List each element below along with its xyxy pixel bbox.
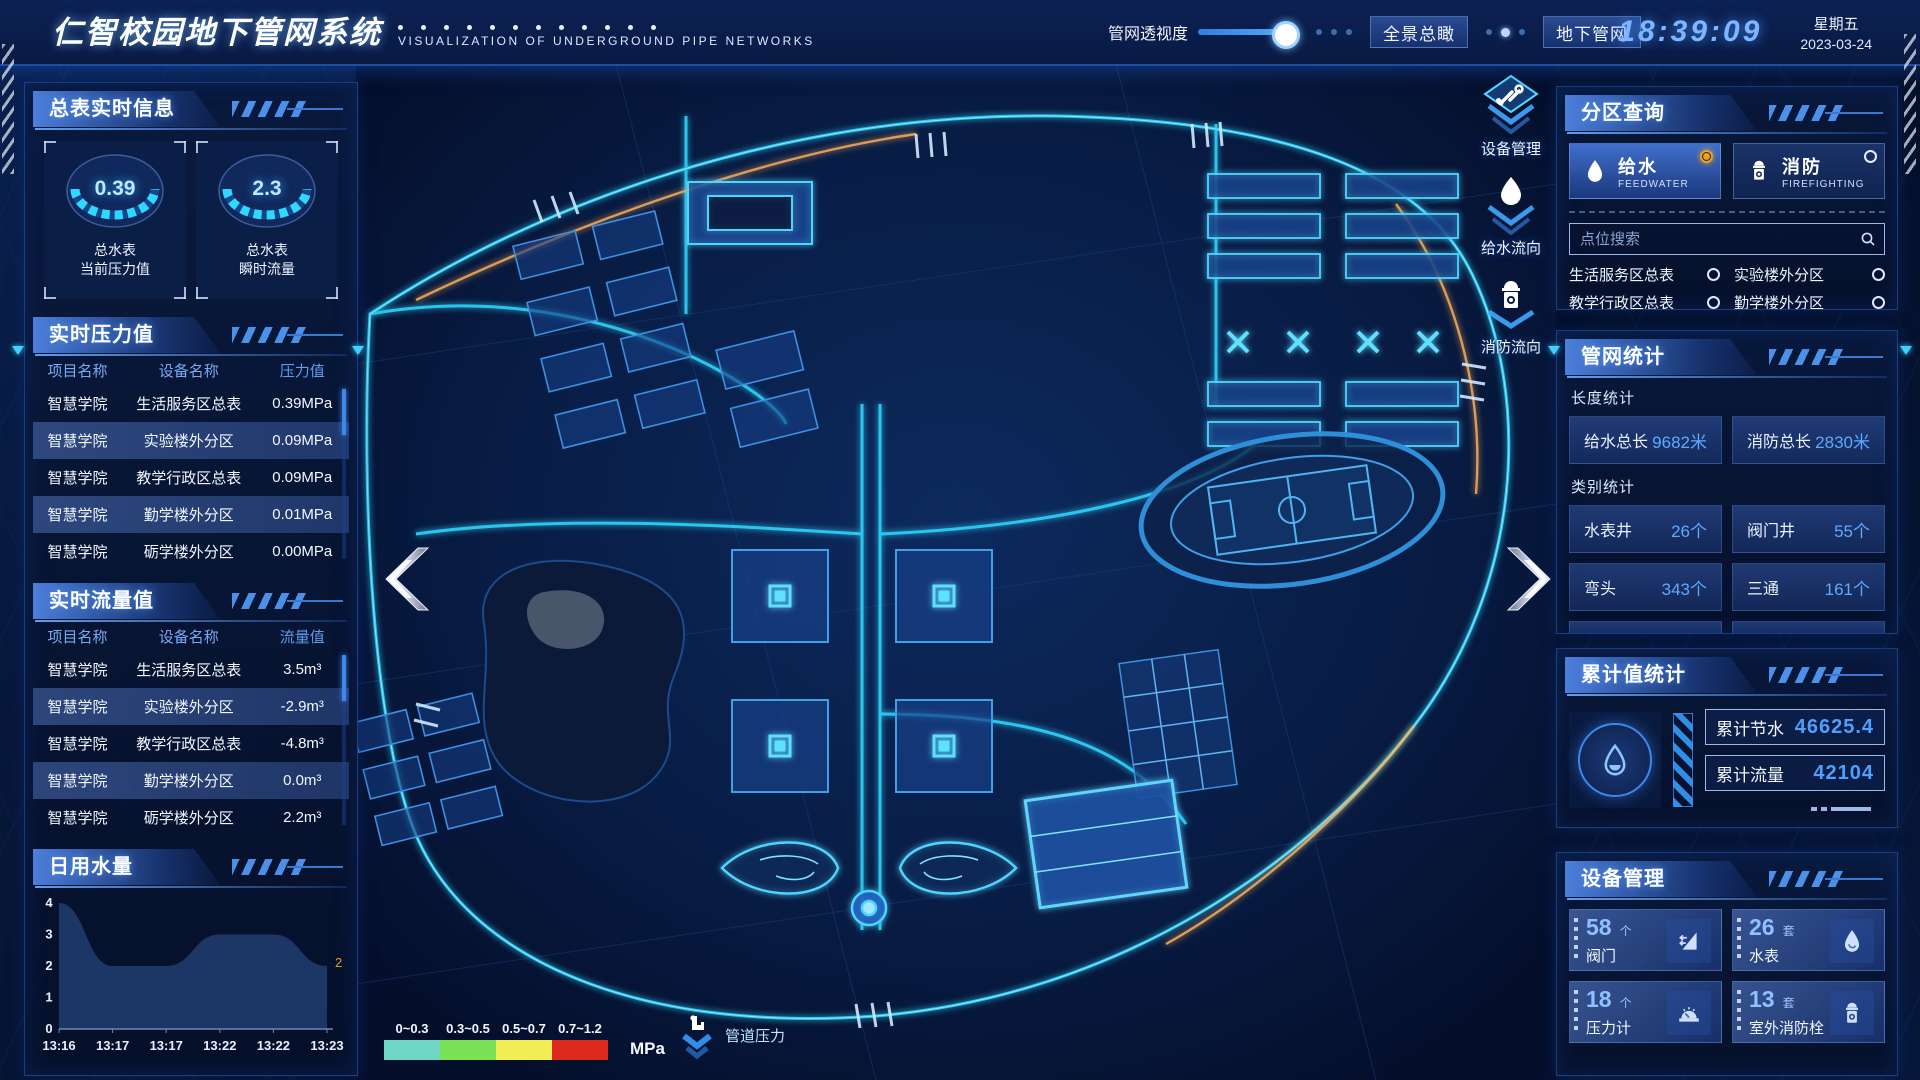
- legend-band: 0.3~0.5: [440, 1021, 496, 1060]
- panel-scroll-arrow[interactable]: [12, 346, 24, 355]
- category-stats-label: 类别统计: [1571, 476, 1883, 497]
- flow-gauge-card: 2.3 总水表 瞬时流量: [196, 141, 338, 299]
- col-header: 设备名称: [122, 360, 256, 381]
- section-devices: 设备管理: [1567, 861, 1887, 897]
- water-drop-icon: [1598, 743, 1632, 777]
- gauge-label-line2: 当前压力值: [44, 260, 186, 279]
- table-row: 智慧学院砺学楼外分区2.2m³: [33, 799, 349, 833]
- line-decor: [1825, 356, 1883, 358]
- pressure-gauge-card: 0.39 总水表 当前压力值: [44, 141, 186, 299]
- table-header-row: 项目名称 设备名称 流量值: [33, 621, 349, 651]
- valve-icon: [1676, 928, 1702, 954]
- table-row: 智慧学院生活服务区总表3.5m³: [33, 651, 349, 688]
- svg-text:13:17: 13:17: [150, 1038, 183, 1053]
- line-decor: [287, 600, 343, 602]
- tab-feedwater[interactable]: 给水 FEEDWATER: [1569, 143, 1721, 199]
- pipeline-pressure-icon: [679, 1014, 715, 1064]
- gauge-value: 0.39: [59, 177, 171, 201]
- table-row: 智慧学院砺学楼外分区0.00MPa: [33, 533, 349, 567]
- legend-unit: MPa: [630, 1039, 665, 1059]
- tab-firefighting[interactable]: 消防 FIREFIGHTING: [1733, 143, 1885, 199]
- radio-unselected[interactable]: [1707, 268, 1720, 281]
- app-subtitle: VISUALIZATION OF UNDERGROUND PIPE NETWOR…: [398, 34, 815, 48]
- table-row: 智慧学院教学行政区总表0.09MPa: [33, 459, 349, 496]
- device-card-pressure-gauge[interactable]: 18个 压力计: [1569, 981, 1722, 1043]
- dots-decor: [1811, 807, 1871, 811]
- category-stat-clipped: [1732, 621, 1885, 634]
- table-row: 智慧学院勤学楼外分区0.0m³: [33, 762, 349, 799]
- accumulated-panel: 累计值统计 累计节水46625.4 累计流量42104: [1556, 648, 1898, 828]
- table-row: 智慧学院教学行政区总表-4.8m³: [33, 725, 349, 762]
- line-decor: [287, 866, 343, 868]
- svg-text:2: 2: [335, 955, 342, 970]
- weekday: 星期五: [1814, 13, 1859, 34]
- water-drop-icon: [1582, 158, 1608, 184]
- hatch-divider: [1673, 713, 1693, 807]
- col-header: 压力值: [256, 360, 349, 381]
- section-title: 分区查询: [1567, 95, 1665, 131]
- hydrant-icon: [1502, 281, 1520, 308]
- map-tools-column: 设备管理 给水流向 消防流向: [1468, 74, 1554, 357]
- section-title: 实时压力值: [35, 317, 154, 353]
- svg-text:13:22: 13:22: [203, 1038, 236, 1053]
- gauge-label-line1: 总水表: [196, 241, 338, 260]
- section-title: 日用水量: [35, 849, 133, 885]
- separator-dots: [1486, 28, 1525, 37]
- radio-unselected[interactable]: [1707, 296, 1720, 309]
- section-zone-query: 分区查询: [1567, 95, 1887, 131]
- category-stat: 弯头343个: [1569, 563, 1722, 611]
- daily-water-chart: 0123413:1613:1713:1713:2213:2213:232: [29, 891, 349, 1064]
- section-title: 总表实时信息: [35, 91, 175, 127]
- section-daily-water: 日用水量: [35, 849, 347, 885]
- dashboard-root: 仁智校园地下管网系统 VISUALIZATION OF UNDERGROUND …: [0, 0, 1920, 1080]
- legend-band: 0~0.3: [384, 1021, 440, 1060]
- accumulated-flow: 累计流量42104: [1705, 755, 1885, 791]
- radio-selected[interactable]: [1700, 150, 1713, 163]
- overlay-label: 给水流向: [1481, 237, 1541, 258]
- svg-text:13:23: 13:23: [310, 1038, 343, 1053]
- panel-scroll-arrow[interactable]: [352, 346, 364, 355]
- hydrant-icon: [1746, 158, 1772, 184]
- section-title: 累计值统计: [1567, 657, 1686, 693]
- line-decor: [1825, 878, 1883, 880]
- left-panel: 总表实时信息 0.39 总水表 当前压力值: [24, 82, 358, 1076]
- gauge-label-line2: 瞬时流量: [196, 260, 338, 279]
- length-stat: 消防总长2830米: [1732, 416, 1885, 464]
- device-card-valve[interactable]: 58个 阀门: [1569, 909, 1722, 971]
- table-row: 智慧学院勤学楼外分区0.01MPa: [33, 496, 349, 533]
- category-stat-clipped: [1569, 621, 1722, 634]
- tab-label: 消防: [1782, 153, 1865, 179]
- firefighting-flow-overlay-button[interactable]: 消防流向: [1479, 272, 1543, 357]
- water-saving-icon-card: [1569, 712, 1661, 808]
- col-header: 项目名称: [33, 626, 122, 647]
- point-item[interactable]: 实验楼外分区: [1734, 261, 1885, 288]
- campus-map-viewport[interactable]: [356, 64, 1556, 1080]
- line-decor: [287, 334, 343, 336]
- section-pipe-stats: 管网统计: [1567, 339, 1887, 375]
- legend-band: 0.7~1.2: [552, 1021, 608, 1060]
- scrollbar[interactable]: [342, 655, 346, 825]
- accumulated-water-saved: 累计节水46625.4: [1705, 709, 1885, 745]
- tab-label: 给水: [1618, 153, 1689, 179]
- svg-text:1: 1: [45, 990, 52, 1005]
- water-drop-icon: [1501, 177, 1521, 205]
- line-decor: [287, 108, 343, 110]
- dashed-divider: [1569, 211, 1885, 213]
- category-stat: 阀门井55个: [1732, 505, 1885, 553]
- opacity-slider[interactable]: [1198, 29, 1298, 35]
- gauge-label-line1: 总水表: [44, 241, 186, 260]
- point-item[interactable]: 勤学楼外分区: [1734, 289, 1885, 310]
- table-row: 智慧学院生活服务区总表0.39MPa: [33, 385, 349, 422]
- length-stat: 给水总长9682米: [1569, 416, 1722, 464]
- search-icon[interactable]: [1860, 231, 1876, 247]
- section-title: 实时流量值: [35, 583, 154, 619]
- edge-hatch-right: [1904, 34, 1916, 174]
- section-title: 设备管理: [1567, 861, 1665, 897]
- section-meter-info: 总表实时信息: [35, 91, 347, 127]
- section-pressure: 实时压力值: [35, 317, 347, 353]
- svg-text:3: 3: [45, 927, 52, 942]
- device-card-outdoor-hydrant[interactable]: 13套 室外消防栓: [1732, 981, 1885, 1043]
- svg-text:0: 0: [45, 1021, 52, 1036]
- section-title: 管网统计: [1567, 339, 1665, 375]
- device-card-water-meter[interactable]: 26套 水表: [1732, 909, 1885, 971]
- svg-text:13:22: 13:22: [257, 1038, 290, 1053]
- point-item[interactable]: 生活服务区总表: [1569, 261, 1720, 288]
- opacity-slider-fill: [1198, 29, 1280, 35]
- device-management-overlay-button[interactable]: 设备管理: [1479, 74, 1543, 159]
- feedwater-flow-overlay-button[interactable]: 给水流向: [1479, 173, 1543, 258]
- zone-query-panel: 分区查询 给水 FEEDWATER: [1556, 86, 1898, 310]
- col-header: 流量值: [256, 626, 349, 647]
- title-dots: VISUALIZATION OF UNDERGROUND PIPE NETWOR…: [398, 25, 815, 52]
- table-header-row: 项目名称 设备名称 压力值: [33, 355, 349, 385]
- point-search-box: [1569, 223, 1885, 255]
- section-flow: 实时流量值: [35, 583, 347, 619]
- edge-hatch-left: [2, 44, 14, 174]
- radio-unselected[interactable]: [1872, 296, 1885, 309]
- header-bar: 仁智校园地下管网系统 VISUALIZATION OF UNDERGROUND …: [0, 0, 1920, 66]
- col-header: 项目名称: [33, 360, 122, 381]
- map-next-arrow[interactable]: [1502, 546, 1558, 612]
- pipe-stats-panel: 管网统计 长度统计 给水总长9682米 消防总长2830米 类别统计 水表井26…: [1556, 330, 1898, 634]
- pressure-table: 项目名称 设备名称 压力值 智慧学院生活服务区总表0.39MPa 智慧学院实验楼…: [33, 355, 349, 567]
- pressure-legend: 0~0.3 0.3~0.5 0.5~0.7 0.7~1.2 MPa 管道压力: [384, 1014, 785, 1060]
- overview-button[interactable]: 全景总瞰: [1370, 16, 1468, 48]
- svg-text:4: 4: [45, 895, 53, 910]
- device-management-panel: 设备管理 58个 阀门 26套 水表: [1556, 852, 1898, 1076]
- section-accumulated: 累计值统计: [1567, 657, 1887, 693]
- line-decor: [1825, 112, 1883, 114]
- gauge-value: 2.3: [211, 177, 323, 201]
- panel-scroll-arrow[interactable]: [1900, 346, 1912, 355]
- water-meter-icon: [1839, 928, 1865, 954]
- campus-map[interactable]: [356, 64, 1556, 1080]
- category-stat: 三通161个: [1732, 563, 1885, 611]
- col-header: 设备名称: [122, 626, 256, 647]
- outdoor-hydrant-icon: [1839, 1000, 1865, 1026]
- radio-unselected[interactable]: [1864, 150, 1877, 163]
- svg-text:13:16: 13:16: [42, 1038, 75, 1053]
- app-title: 仁智校园地下管网系统: [52, 7, 382, 52]
- svg-text:13:17: 13:17: [96, 1038, 129, 1053]
- opacity-slider-label: 管网透视度: [1108, 20, 1188, 44]
- legend-caption: 管道压力: [725, 1025, 785, 1046]
- date: 2023-03-24: [1800, 36, 1872, 52]
- line-decor: [1825, 674, 1883, 676]
- map-prev-arrow[interactable]: [378, 546, 434, 612]
- tab-sublabel: FEEDWATER: [1618, 179, 1689, 190]
- table-row: 智慧学院实验楼外分区-2.9m³: [33, 688, 349, 725]
- svg-text:2: 2: [45, 958, 52, 973]
- table-row: 智慧学院实验楼外分区0.09MPa: [33, 422, 349, 459]
- length-stats-label: 长度统计: [1571, 387, 1883, 408]
- overlay-label: 消防流向: [1481, 336, 1541, 357]
- flow-table: 项目名称 设备名称 流量值 智慧学院生活服务区总表3.5m³ 智慧学院实验楼外分…: [33, 621, 349, 833]
- opacity-slider-thumb[interactable]: [1272, 21, 1300, 49]
- overlay-label: 设备管理: [1481, 138, 1541, 159]
- tab-sublabel: FIREFIGHTING: [1782, 179, 1865, 190]
- panel-scroll-arrow[interactable]: [1548, 346, 1560, 355]
- separator-dots: [1316, 29, 1352, 35]
- pressure-gauge-icon: [1676, 1000, 1702, 1026]
- point-search-input[interactable]: [1578, 230, 1860, 249]
- category-stat: 水表井26个: [1569, 505, 1722, 553]
- radio-unselected[interactable]: [1872, 268, 1885, 281]
- scrollbar[interactable]: [342, 389, 346, 559]
- clock: 18:39:09: [1618, 15, 1762, 49]
- legend-band: 0.5~0.7: [496, 1021, 552, 1060]
- point-item[interactable]: 教学行政区总表: [1569, 289, 1720, 310]
